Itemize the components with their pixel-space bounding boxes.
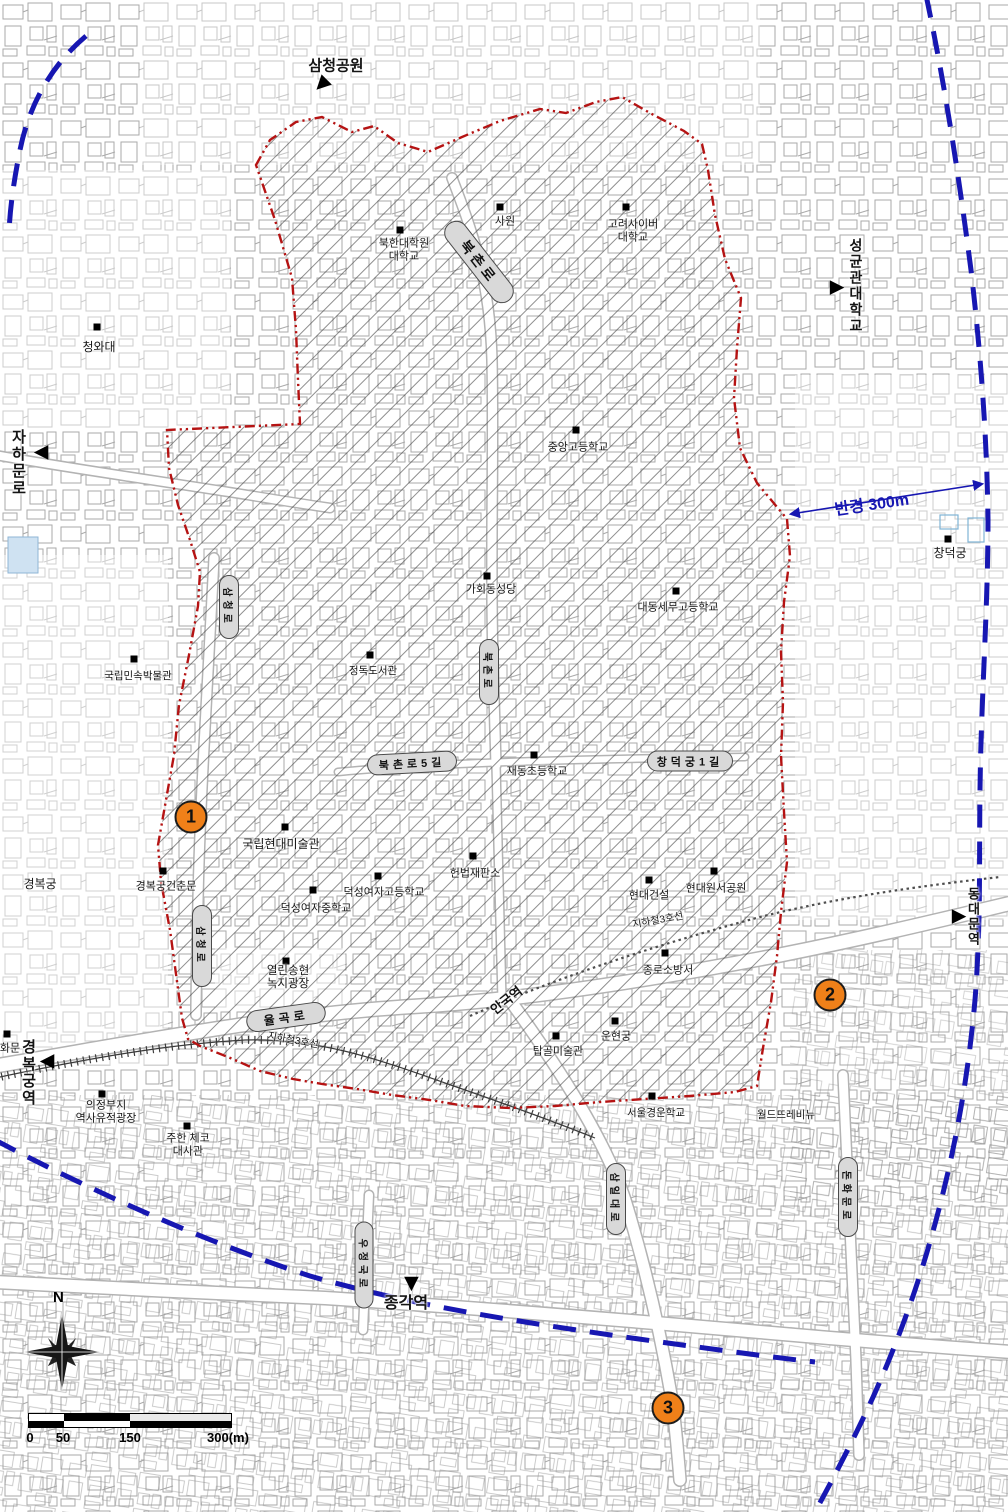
scale-seg	[64, 1421, 130, 1428]
scale-label: 50	[56, 1430, 70, 1445]
bukchon-site-map: 북촌로 삼청로 북촌로 북촌로5길 창덕궁1길 삼청로 율곡로 돈화문로 삼일대…	[0, 0, 1008, 1512]
compass-north-label: N	[53, 1289, 64, 1306]
basemap-linework	[0, 0, 1008, 1512]
scale-bar: 0 50 150 300(m)	[28, 1413, 232, 1448]
scale-seg	[29, 1421, 64, 1428]
scale-bar-labels: 0 50 150 300(m)	[28, 1430, 232, 1448]
scale-label: 300(m)	[207, 1430, 249, 1445]
scale-bar-segments	[28, 1413, 232, 1428]
scale-seg	[130, 1421, 231, 1428]
scale-label: 150	[119, 1430, 141, 1445]
scale-label: 0	[26, 1430, 33, 1445]
